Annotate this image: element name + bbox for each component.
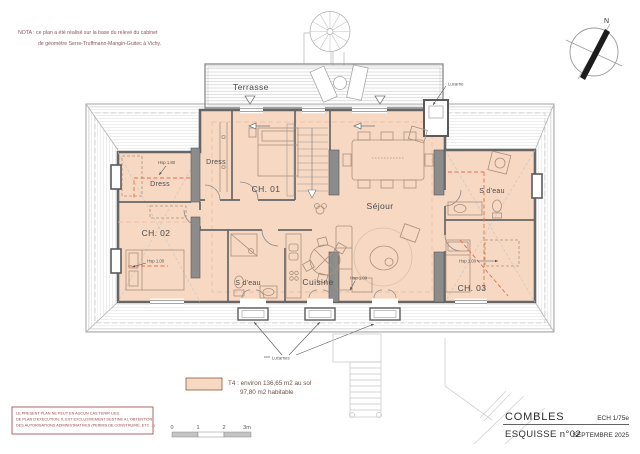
lucarnes-label: Lucarnes <box>272 356 290 361</box>
room-label-sejour: Séjour <box>367 201 394 211</box>
spiral-stair <box>304 12 350 67</box>
scale-tick-1: 1 <box>196 425 199 431</box>
room-label-terrasse: Terrasse <box>233 82 269 92</box>
window-left-2 <box>111 249 121 273</box>
floor-plan-page: NOTA : ce plan a été réalisé sur la base… <box>0 0 640 454</box>
legend-swatch <box>186 378 222 390</box>
room-label-ch03: CH. 03 <box>458 283 487 293</box>
title-combles: COMBLES <box>505 411 564 423</box>
disclaimer-line2: DE PLAN D'EXECUTION. IL EST EXCLUSIVEMEN… <box>16 418 152 422</box>
room-label-sdeau-center: S d'eau <box>235 280 261 287</box>
title-block: COMBLES ECH 1/75e ESQUISSE n°02 SEPTEMBR… <box>503 411 629 440</box>
room-label-ch02: CH. 02 <box>142 228 171 238</box>
hsp-100-cuisine-label: Hsp 1.00 <box>350 276 368 281</box>
north-label: N <box>604 18 609 25</box>
scale-tick-0: 0 <box>170 425 173 431</box>
hsp-100-ch03-label: Hsp 1.00 <box>459 259 477 264</box>
window-left-1 <box>111 165 121 189</box>
north-needle-icon <box>580 29 610 80</box>
scale-tick-2: 2 <box>222 425 225 431</box>
disclaimer-box: LE PRESENT PLAN NE PEUT EN AUCUN CAS TEN… <box>12 407 156 434</box>
floor-plan-svg: NOTA : ce plan a été réalisé sur la base… <box>0 0 640 454</box>
title-sketch: ESQUISSE n°02 <box>505 429 581 440</box>
title-scale: ECH 1/75e <box>597 415 629 422</box>
room-label-dress-left: Dress <box>150 181 170 188</box>
note-line1: NOTA : ce plan a été réalisé sur la base… <box>18 30 158 36</box>
room-label-dress-center: Dress <box>206 159 226 166</box>
lucarne-label: Lucarne <box>448 82 464 87</box>
scale-tick-3: 3m <box>243 425 251 431</box>
disclaimer-line1: LE PRESENT PLAN NE PEUT EN AUCUN CAS TEN… <box>16 412 120 416</box>
title-date: SEPTEMBRE 2025 <box>573 432 630 439</box>
note: NOTA : ce plan a été réalisé sur la base… <box>18 30 161 47</box>
hsp-180-label: Hsp 1.80 <box>158 160 176 165</box>
window-right <box>532 174 542 198</box>
hsp-100-ch02-label: Hsp 1.00 <box>147 259 165 264</box>
room-label-ch01: CH. 01 <box>252 184 281 194</box>
terrace: Terrasse <box>205 64 443 108</box>
compass: N <box>566 18 622 80</box>
room-label-sdeau-right: S d'eau <box>479 188 505 195</box>
exterior-stair <box>333 334 382 418</box>
room-label-cuisine: Cuisine <box>302 277 333 287</box>
scale-bar: 0 1 2 3m <box>170 425 251 437</box>
legend-line1: T4 : environ 136,65 m2 au sol <box>228 380 311 387</box>
note-line2: de géomètre Serre-Truffmann-Mangin-Guite… <box>38 41 161 47</box>
disclaimer-line3: DES AUTORISATIONS ADMINISTRATIVES (PERMI… <box>16 424 156 428</box>
legend: T4 : environ 136,65 m2 au sol 97,80 m2 h… <box>186 378 311 396</box>
legend-line2: 97,80 m2 habitable <box>240 389 294 396</box>
